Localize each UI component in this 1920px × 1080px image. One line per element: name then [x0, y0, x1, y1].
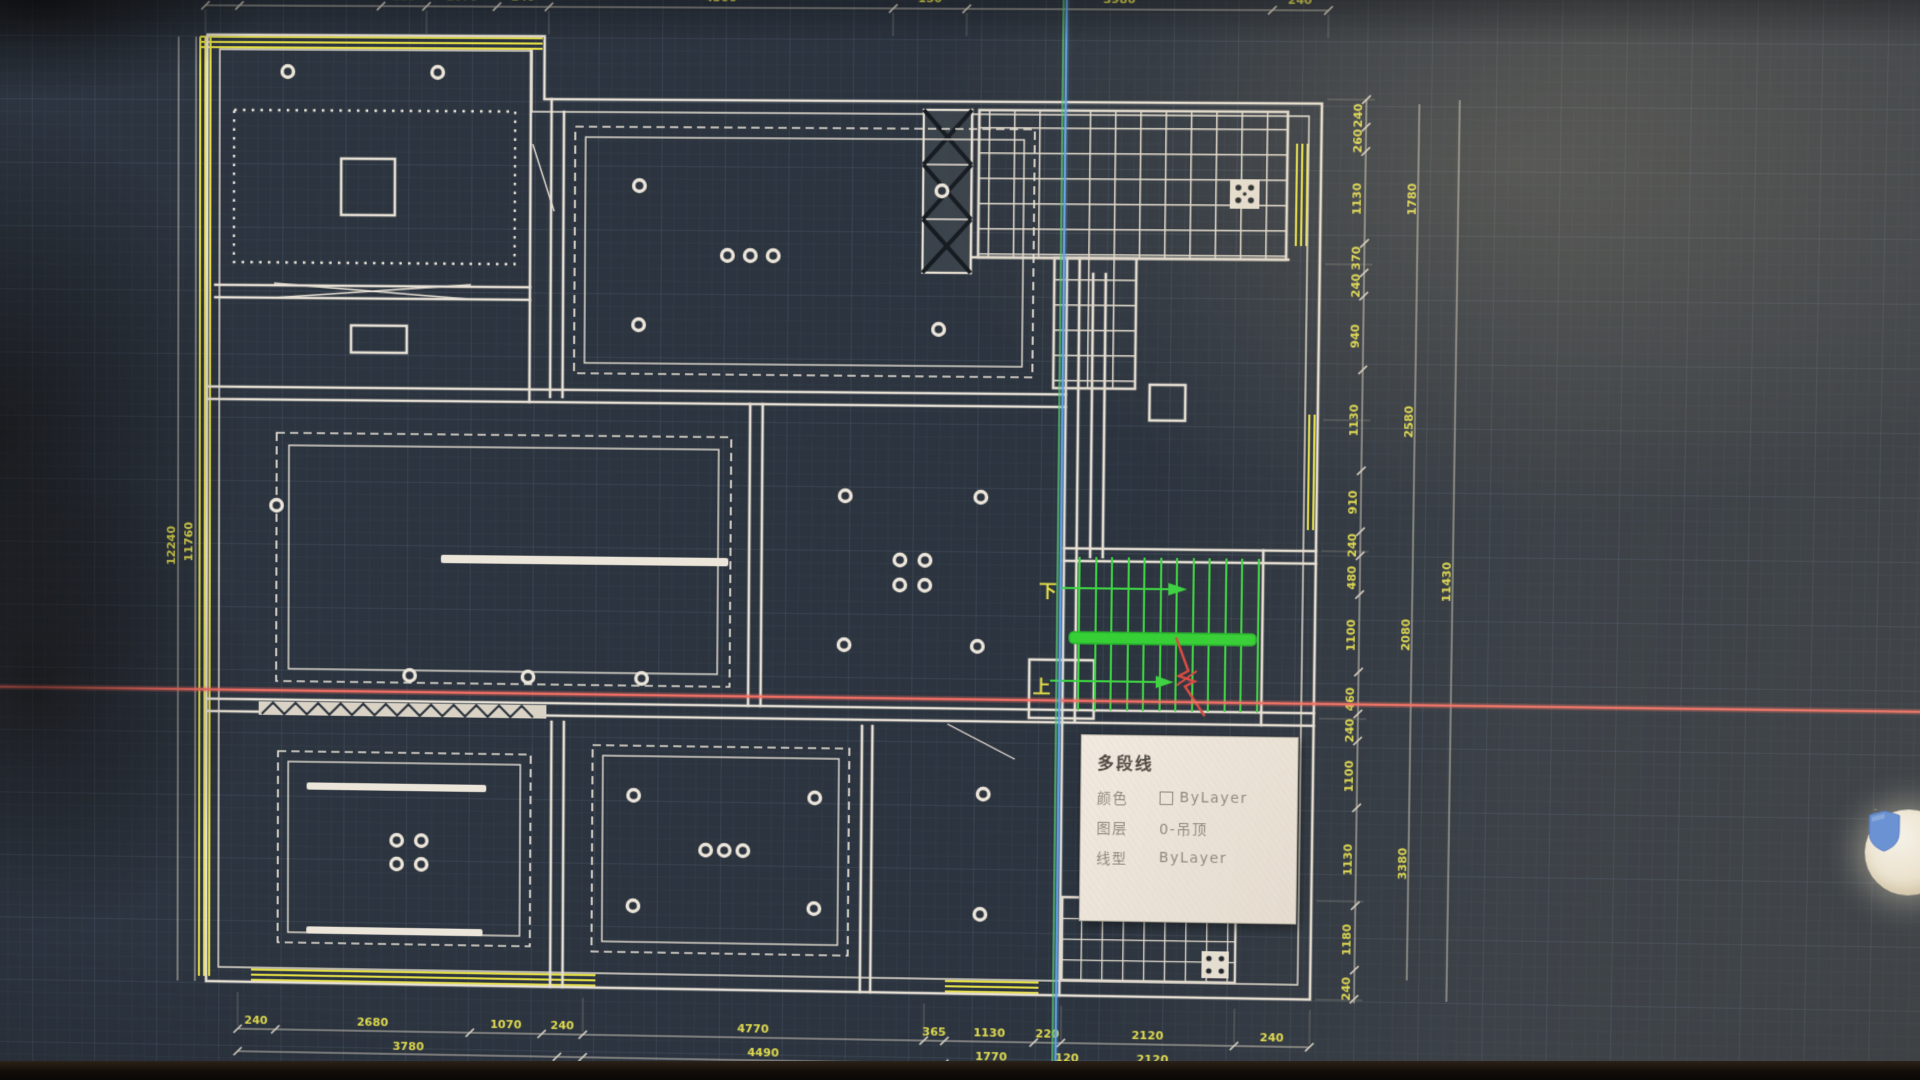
dim-bottom1-9: 240: [1260, 1030, 1284, 1044]
dim-top-4: 240: [511, 0, 535, 4]
dim-right-15: 1180: [1339, 924, 1354, 956]
dim-right-0: 240: [1351, 103, 1366, 127]
dim-left-1: 11760: [182, 522, 196, 562]
dim-bottom1-8: 2120: [1131, 1028, 1163, 1042]
stairs-up-label: 上: [1033, 677, 1051, 698]
bylayer-color-swatch-icon: [1160, 791, 1174, 805]
dim-top-2: 120: [392, 0, 416, 3]
dim-right-12: 240: [1342, 718, 1356, 742]
dim-right-9: 480: [1344, 566, 1359, 590]
dim-bottom1-5: 365: [922, 1024, 946, 1038]
dim-top-8: 240: [1288, 0, 1313, 7]
dim-bottom2-1: 4490: [747, 1045, 779, 1059]
dim-right-2: 1130: [1349, 183, 1364, 215]
dim-rightmid-1: 2580: [1401, 406, 1416, 438]
dim-rightmid-3: 3380: [1395, 848, 1410, 880]
dim-top-3: 1070: [446, 0, 478, 3]
dim-bottom1-0: 240: [244, 1013, 267, 1027]
tooltip-layer-label: 图层: [1096, 817, 1159, 839]
dim-rightmid-2: 2080: [1398, 619, 1413, 651]
dim-bottom1-6: 1130: [973, 1025, 1005, 1039]
shield-icon: [1865, 809, 1904, 854]
dim-top-5: 4300: [705, 0, 737, 4]
entity-tooltip: 多段线 颜色 ByLayer 图层 0-吊顶 线型 ByLayer: [1079, 734, 1299, 924]
tooltip-linetype-value: ByLayer: [1159, 850, 1228, 868]
dim-bottom2-0: 3780: [393, 1039, 424, 1053]
dim-right-8: 240: [1345, 533, 1360, 557]
dim-top-1: 2680: [294, 0, 326, 3]
tooltip-linetype-label: 线型: [1096, 847, 1159, 869]
tooltip-title: 多段线: [1097, 749, 1282, 777]
vent-square-2: [1201, 951, 1229, 978]
dim-bottom1-4: 4770: [737, 1021, 769, 1035]
dim-top-6: 150: [918, 0, 942, 5]
dim-top-7: 3980: [1103, 0, 1135, 6]
monitor-bezel: [0, 1061, 1920, 1080]
dim-bottom1-1: 2680: [357, 1015, 388, 1029]
tooltip-color-label: 颜色: [1097, 786, 1160, 808]
dim-right-10: 1100: [1343, 619, 1358, 651]
dim-bottom1-2: 1070: [490, 1017, 522, 1031]
dim-right-3: 370: [1349, 246, 1364, 270]
dim-right-5: 940: [1348, 324, 1363, 348]
cad-canvas[interactable]: 下 上 240 2680 120 1070 240 4300 150 3980 …: [0, 0, 1920, 1080]
dim-right-total: 11430: [1439, 562, 1454, 602]
dim-left-0: 12240: [164, 526, 178, 566]
dim-top-0: 240: [210, 0, 234, 2]
dim-right-14: 1130: [1340, 844, 1355, 876]
highlighted-polyline[interactable]: [1069, 632, 1256, 646]
vent-square: [1230, 179, 1260, 209]
dim-right-7: 910: [1345, 490, 1360, 514]
cad-application-screen: 下 上 240 2680 120 1070 240 4300 150 3980 …: [0, 0, 1920, 1080]
stairs-down-label: 下: [1039, 582, 1057, 602]
dim-right-16: 240: [1339, 977, 1353, 1001]
dim-right-13: 1100: [1342, 760, 1357, 792]
tooltip-layer-value: 0-吊顶: [1159, 817, 1208, 839]
dim-right-11: 460: [1343, 687, 1357, 711]
tooltip-color-value: ByLayer: [1179, 790, 1248, 808]
dim-right-4: 240: [1348, 273, 1363, 297]
dim-right-1: 260: [1350, 129, 1365, 153]
monitor-photo: 下 上 240 2680 120 1070 240 4300 150 3980 …: [0, 0, 1920, 1080]
dim-right-6: 1130: [1346, 404, 1361, 436]
dim-bottom1-3: 240: [550, 1018, 574, 1032]
dim-rightmid-0: 1780: [1405, 183, 1420, 215]
